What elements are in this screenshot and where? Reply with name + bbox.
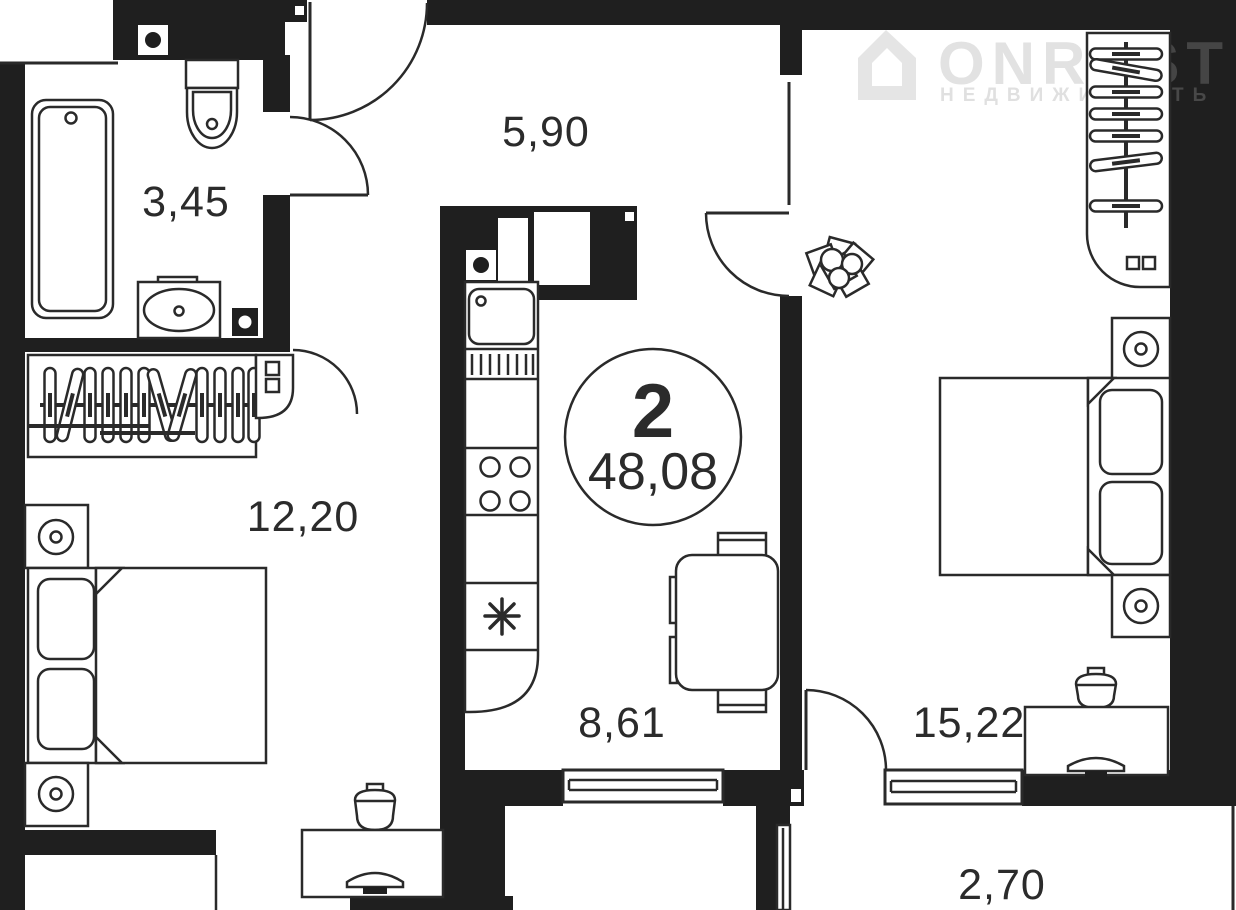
wardrobe-right (1087, 33, 1170, 287)
kitchen-counter (465, 282, 538, 712)
nightstand-icon (1112, 318, 1170, 380)
desk-icon (1025, 668, 1168, 777)
total-area-label: 48,08 (588, 443, 718, 501)
house-icon (858, 30, 916, 100)
kitchen (465, 282, 538, 712)
shaft-box (232, 308, 258, 336)
nightstand-icon (25, 763, 88, 826)
floor-plan: ONREST НЕДВИЖИМОСТЬ (0, 0, 1236, 910)
area-badge: 2 48,08 (565, 349, 741, 525)
nightstand-icon (25, 505, 88, 568)
bedroom-door-icon (706, 82, 789, 296)
kitchen-window-icon (563, 770, 723, 802)
dining-set (670, 533, 778, 712)
toilet-icon (186, 60, 238, 148)
desk-icon (302, 784, 443, 897)
room-area-label-balcony: 2,70 (958, 861, 1046, 909)
bathroom-door-icon (290, 117, 368, 195)
fridge-asterisk-icon (485, 599, 519, 634)
plant-icon (806, 237, 873, 297)
corridor-door-icon (293, 350, 357, 414)
bedroom-window-icon (885, 770, 1022, 804)
bed-icon (28, 568, 266, 763)
bathtub-icon (32, 100, 113, 318)
wardrobe-left (28, 355, 293, 457)
room-area-label-bedroom-left: 12,20 (247, 493, 360, 541)
bed-icon (940, 378, 1170, 575)
rooms-count-label: 2 (632, 369, 674, 454)
watermark: ONREST НЕДВИЖИМОСТЬ (858, 30, 1230, 106)
bedroom-right (806, 33, 1170, 777)
sink-icon (138, 277, 220, 338)
nightstand-icon (1112, 575, 1170, 637)
cabinet (256, 355, 293, 418)
room-area-label-hallway: 5,90 (502, 108, 590, 156)
entrance-door-icon (310, 2, 427, 120)
dining-table-icon (676, 555, 778, 690)
room-area-label-bathroom: 3,45 (142, 178, 230, 226)
chair-icon (355, 784, 395, 830)
chair-icon (1076, 668, 1116, 708)
floor-plan-svg: ONREST НЕДВИЖИМОСТЬ (0, 0, 1236, 910)
room-area-label-bedroom-right: 15,22 (913, 699, 1026, 747)
room-area-label-kitchen: 8,61 (578, 699, 666, 747)
balcony-door-icon (806, 690, 886, 770)
watermark-tagline: НЕДВИЖИМОСТЬ (940, 85, 1215, 106)
balcony-glazing-icon (777, 825, 790, 910)
